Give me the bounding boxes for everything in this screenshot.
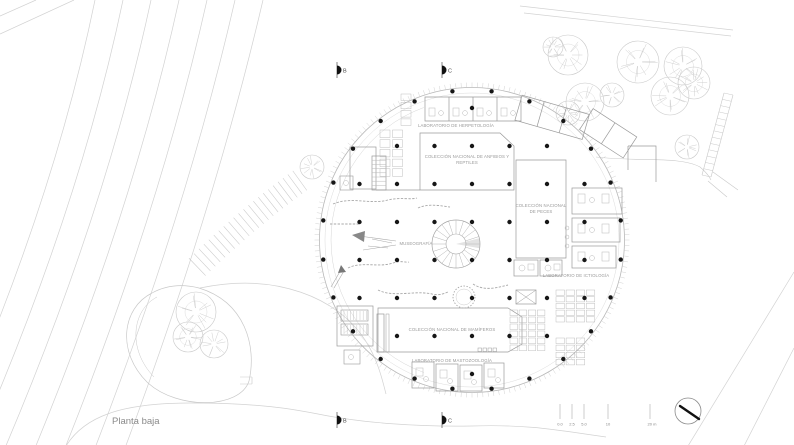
tree-branch [614, 97, 619, 102]
column-dot [321, 257, 325, 261]
stair-step [219, 231, 235, 249]
fixture [565, 235, 569, 239]
tree-branch [304, 168, 310, 173]
stair-step [293, 171, 307, 190]
column-dot [395, 144, 399, 148]
column-dot [470, 144, 474, 148]
facade-tick [574, 123, 577, 126]
desk [380, 130, 390, 138]
tree-branch [640, 44, 647, 58]
scale-label-3: 10 [606, 422, 611, 427]
ramp-rail [702, 93, 724, 175]
facade-tick [570, 119, 573, 122]
tree-icon [548, 35, 588, 75]
tree-branch [549, 55, 564, 56]
facade-tick [418, 92, 420, 96]
exhibit-partition [348, 262, 409, 268]
facade-tick [393, 373, 395, 377]
facade-tick [514, 89, 515, 93]
north-needle [680, 406, 699, 419]
stair-step [278, 182, 292, 201]
column-dot [489, 89, 493, 93]
facade-tick [326, 297, 330, 299]
fixture [602, 252, 609, 261]
desk [393, 130, 403, 138]
fixture [463, 111, 468, 116]
ramp-rung [705, 162, 714, 164]
desk [401, 111, 411, 118]
facade-tick [605, 317, 609, 319]
column-dot [545, 334, 549, 338]
fixture [496, 378, 501, 383]
column-dot [395, 182, 399, 186]
desk [401, 119, 411, 126]
facade-tick [434, 388, 435, 392]
tree-branch [181, 327, 187, 335]
fixture [477, 108, 483, 116]
tree-branch [186, 315, 194, 325]
spiral-tread [462, 225, 470, 236]
spiral-tread [466, 247, 479, 251]
facade-tick [624, 218, 628, 219]
tree-outline [600, 83, 624, 107]
column-dot [582, 258, 586, 262]
facade-tick [348, 143, 352, 146]
facade-tick [623, 213, 627, 214]
tree-branch [555, 44, 561, 46]
spiral-tread [459, 221, 463, 234]
fixture [590, 256, 595, 261]
facade-tick [549, 104, 551, 108]
facade-tick [330, 171, 334, 173]
highway-line [0, 0, 123, 445]
tree-branch [216, 339, 222, 343]
column-dot [582, 220, 586, 224]
facade-tick [318, 207, 322, 208]
floor-plan-page: LABORATORIO DE HERPETOLOGÍA COLECCIÓN NA… [0, 0, 794, 445]
facade-tick [589, 338, 592, 341]
tree-branch [613, 87, 616, 93]
page-title: Planta baja [112, 416, 160, 427]
facade-tick [336, 161, 340, 163]
facade-tick [398, 101, 400, 105]
tree-branch [587, 105, 594, 117]
tree-branch [182, 308, 192, 311]
column-dot [432, 182, 436, 186]
stair-step [239, 213, 255, 231]
spiral-tread [459, 254, 463, 267]
fixture [448, 379, 453, 384]
facade-tick [589, 139, 592, 142]
facade-tick [607, 166, 611, 168]
tree-icon [678, 67, 710, 99]
facade-tick [493, 84, 494, 88]
desk [556, 297, 565, 302]
tree-branch [640, 66, 646, 75]
facade-tick [348, 334, 352, 337]
fixture [545, 265, 551, 271]
desk [510, 317, 518, 323]
floor-plan-drawing: LABORATORIO DE HERPETOLOGÍA COLECCIÓN NA… [0, 0, 794, 445]
facade-tick [321, 282, 325, 283]
facade-tick [539, 378, 541, 382]
facade-tick [558, 109, 561, 113]
facade-tick [558, 367, 561, 371]
desk [528, 331, 536, 337]
ramp-rung [712, 137, 721, 139]
column-dot [608, 295, 612, 299]
facade-tick [318, 272, 322, 273]
tree-branch [621, 63, 634, 66]
stair-step [258, 197, 273, 216]
tree-branch [575, 105, 583, 114]
stair-step [253, 201, 268, 220]
scale-label-4: 20 m [648, 422, 658, 427]
highway-line [0, 0, 95, 445]
road-line [520, 6, 733, 30]
tree-branch [212, 333, 214, 342]
desk [537, 317, 545, 323]
desk [576, 338, 585, 344]
facade-tick [445, 85, 446, 89]
desk [528, 338, 536, 344]
facade-tick [403, 378, 405, 382]
north-arrow-icon [675, 398, 701, 424]
tree-branch [216, 346, 224, 353]
label-coleccion-anfibios-line2: REPTILES [456, 160, 478, 165]
column-dot [561, 119, 565, 123]
facade-tick [359, 346, 362, 349]
facade-tick [322, 287, 326, 288]
wc-room [514, 260, 538, 276]
stair-step [263, 193, 278, 212]
column-dot [395, 220, 399, 224]
facade-tick [375, 116, 378, 120]
column-dot [527, 99, 531, 103]
spiral-tread [437, 230, 448, 238]
fixture [464, 371, 471, 379]
facade-tick [605, 161, 609, 163]
column-dot [395, 334, 399, 338]
spiral-tread [449, 221, 453, 234]
desk [528, 345, 536, 351]
tree-branch [184, 340, 187, 347]
facade-tick [623, 267, 627, 268]
facade-tick [610, 307, 614, 309]
column-dot [351, 146, 355, 150]
small-room [344, 350, 360, 364]
ramp-rung [717, 118, 726, 120]
tree-branch [678, 142, 685, 146]
tree-icon [675, 135, 699, 159]
facade-tick [509, 388, 510, 392]
column-dot [412, 376, 416, 380]
fixture [478, 348, 482, 352]
column-dot [470, 296, 474, 300]
column-dot [357, 220, 361, 224]
tree-inner [180, 329, 197, 346]
column-dot [432, 144, 436, 148]
facade-tick [612, 176, 616, 178]
desk [566, 345, 575, 351]
spiral-tread [442, 252, 450, 263]
lab-cell [572, 246, 616, 268]
scale-bar: 0.0 2.5 5.0 10 20 m [557, 404, 657, 427]
desk [401, 102, 411, 109]
column-dot [507, 144, 511, 148]
facade-tick [393, 104, 395, 108]
column-dot [432, 334, 436, 338]
column-dot [527, 376, 531, 380]
road-line [0, 0, 36, 16]
desk [576, 359, 585, 365]
stair-step [214, 235, 230, 253]
desk [519, 324, 527, 330]
tree-branch [640, 48, 644, 58]
tree-branch [680, 142, 685, 146]
fixture [590, 228, 595, 233]
facade-tick [333, 312, 337, 314]
tree-branch [203, 344, 212, 346]
spiral-landing [456, 238, 480, 248]
ramp-rung [724, 93, 733, 95]
facade-tick [367, 354, 370, 357]
desk [528, 310, 536, 316]
column-dot [507, 334, 511, 338]
road-line [524, 13, 731, 36]
desk [393, 159, 403, 167]
duct [386, 314, 389, 352]
facade-tick [553, 370, 555, 374]
lab-cell [572, 218, 620, 242]
facade-tick [499, 391, 500, 395]
road-line [744, 348, 794, 445]
tree-icon [176, 292, 216, 332]
fixture [602, 194, 609, 203]
column-dot [378, 357, 382, 361]
desk [586, 317, 595, 322]
ground-curve [596, 157, 711, 180]
column-dot [545, 220, 549, 224]
section-marker-icon [442, 66, 447, 75]
leader-sketch [368, 239, 392, 248]
tree-branch [587, 105, 592, 113]
stair-step [194, 254, 211, 271]
ramp-rung [710, 143, 719, 145]
tree-branch [689, 145, 696, 147]
column-dot [470, 258, 474, 262]
tree-outline [173, 322, 203, 352]
fixture [429, 108, 435, 116]
desk [586, 290, 595, 295]
facade-tick [389, 370, 391, 374]
column-dot [545, 144, 549, 148]
facade-tick [324, 292, 328, 294]
desk [556, 345, 565, 351]
tree-icon [173, 322, 203, 352]
desk [519, 345, 527, 351]
entry-arrowhead [338, 265, 346, 273]
scale-label-0: 0.0 [557, 422, 563, 427]
tree-outline [200, 330, 228, 358]
facade-tick [363, 350, 366, 353]
tree-branch [686, 69, 697, 78]
facade-tick [574, 354, 577, 357]
column-dot [351, 329, 355, 333]
column-dot [619, 257, 623, 261]
column-dot [357, 258, 361, 262]
facade-tick [336, 317, 340, 319]
facade-tick [607, 312, 611, 314]
section-marker-icon [442, 416, 447, 425]
desk [556, 317, 565, 322]
desk [510, 345, 518, 351]
facade-tick [534, 96, 536, 100]
tree-icon [617, 41, 659, 83]
fixture [487, 111, 492, 116]
facade-tick [593, 143, 597, 146]
desk [556, 338, 565, 344]
highway-line [65, 0, 207, 445]
facade-tick [359, 131, 362, 134]
highway-line [35, 0, 179, 445]
tree-branch [304, 164, 310, 166]
column-dot [432, 220, 436, 224]
desk [380, 140, 390, 148]
tree-branch [570, 112, 576, 113]
tree-outline [300, 155, 324, 179]
facade-tick [529, 382, 531, 386]
fixture [578, 224, 585, 233]
stair-step [199, 249, 215, 267]
facade-tick [345, 330, 349, 333]
tree-branch [190, 325, 196, 334]
facade-tick [450, 392, 451, 396]
section-letter-b-top: B [343, 68, 347, 74]
tree-outline [664, 47, 702, 85]
section-marker-icon [337, 416, 342, 425]
ramp-rung [714, 131, 723, 133]
section-letter-b-bottom: B [343, 418, 347, 424]
fixture [554, 264, 560, 270]
facade-tick [610, 171, 614, 173]
facade-tick [418, 384, 420, 388]
desk [510, 310, 518, 316]
label-coleccion-peces-line1: COLECCIÓN NACIONAL [516, 203, 567, 208]
stair-step [283, 178, 297, 197]
column-dot [470, 372, 474, 376]
column-dot [432, 258, 436, 262]
facade-tick [620, 202, 624, 203]
tree-branch [671, 60, 680, 65]
exhibit-partition [333, 198, 417, 204]
facade-tick [429, 89, 430, 93]
spiral-tread [449, 254, 453, 267]
column-dot [589, 329, 593, 333]
tree-branch [554, 41, 557, 46]
tree-branch [695, 86, 698, 94]
desk [393, 169, 403, 177]
column-dot [395, 258, 399, 262]
facade-tick [316, 218, 320, 219]
facade-tick [618, 287, 622, 288]
facade-tick [544, 375, 546, 379]
facade-tick [622, 272, 626, 273]
wc-room [340, 176, 353, 190]
fixture [511, 111, 516, 116]
tree-icon [651, 77, 689, 115]
exhibit-partition [418, 205, 450, 208]
wall [601, 123, 615, 144]
facade-tick [322, 191, 326, 192]
fixture [488, 369, 495, 377]
facade-tick [514, 387, 515, 391]
column-dot [582, 182, 586, 186]
tree-branch [310, 156, 311, 165]
facade-tick [549, 373, 551, 377]
facade-tick [351, 139, 354, 142]
facade-tick [355, 135, 358, 138]
desk [393, 149, 403, 157]
spiral-tread [433, 237, 446, 241]
tree-branch [310, 169, 311, 175]
desk [576, 317, 585, 322]
desk [566, 310, 575, 315]
leader-arrow [359, 236, 396, 250]
tree-branch [314, 168, 322, 172]
facade-tick [371, 119, 374, 122]
tree-icon [300, 155, 324, 179]
facade-tick [345, 147, 349, 150]
tree-branch [575, 105, 583, 117]
facade-tick [450, 84, 451, 88]
facade-tick [562, 364, 565, 368]
column-dot [331, 295, 335, 299]
column-dot [395, 296, 399, 300]
tree-outline [675, 135, 699, 159]
facade-tick [413, 382, 415, 386]
tree-branch [693, 70, 694, 80]
ramp-rail [711, 95, 733, 177]
facade-tick [439, 390, 440, 394]
tree-icon [600, 83, 624, 107]
facade-tick [602, 321, 606, 323]
column-dot [489, 387, 493, 391]
tree-branch [678, 148, 685, 153]
fixture [565, 244, 569, 248]
column-dot [582, 296, 586, 300]
tree-branch [642, 61, 655, 62]
fixture [519, 265, 525, 271]
stair-step [209, 240, 225, 258]
column-dot [545, 296, 549, 300]
desk [510, 338, 518, 344]
fixture [528, 264, 534, 270]
exhibit-partition [378, 290, 448, 295]
facade-tick [328, 302, 332, 304]
ramp-rung [702, 175, 711, 177]
road-line [688, 272, 794, 445]
tree-icon [566, 83, 604, 121]
column-dot [545, 182, 549, 186]
tree-branch [686, 58, 696, 64]
facade-tick [379, 364, 382, 368]
building-layer [315, 83, 657, 398]
column-dot [357, 182, 361, 186]
spiral-tread [442, 225, 450, 236]
column-dot [545, 258, 549, 262]
column-dot [507, 258, 511, 262]
